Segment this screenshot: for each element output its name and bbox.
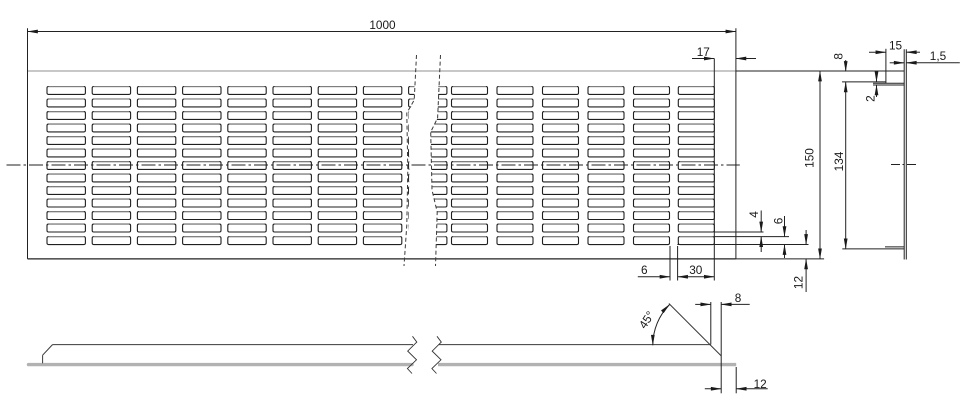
svg-text:12: 12	[792, 276, 806, 289]
svg-text:150: 150	[802, 148, 816, 168]
svg-text:134: 134	[832, 151, 846, 171]
svg-text:2: 2	[864, 95, 878, 102]
svg-text:15: 15	[889, 39, 903, 53]
svg-text:1,5: 1,5	[930, 49, 947, 63]
svg-text:4: 4	[747, 211, 761, 218]
svg-text:6: 6	[641, 263, 648, 277]
svg-text:6: 6	[771, 217, 785, 224]
svg-text:1000: 1000	[369, 18, 396, 32]
svg-text:17: 17	[697, 45, 710, 59]
svg-text:12: 12	[754, 377, 767, 391]
svg-text:45°: 45°	[636, 308, 658, 331]
svg-text:30: 30	[689, 263, 703, 277]
svg-text:8: 8	[831, 53, 845, 60]
svg-text:8: 8	[735, 291, 742, 305]
